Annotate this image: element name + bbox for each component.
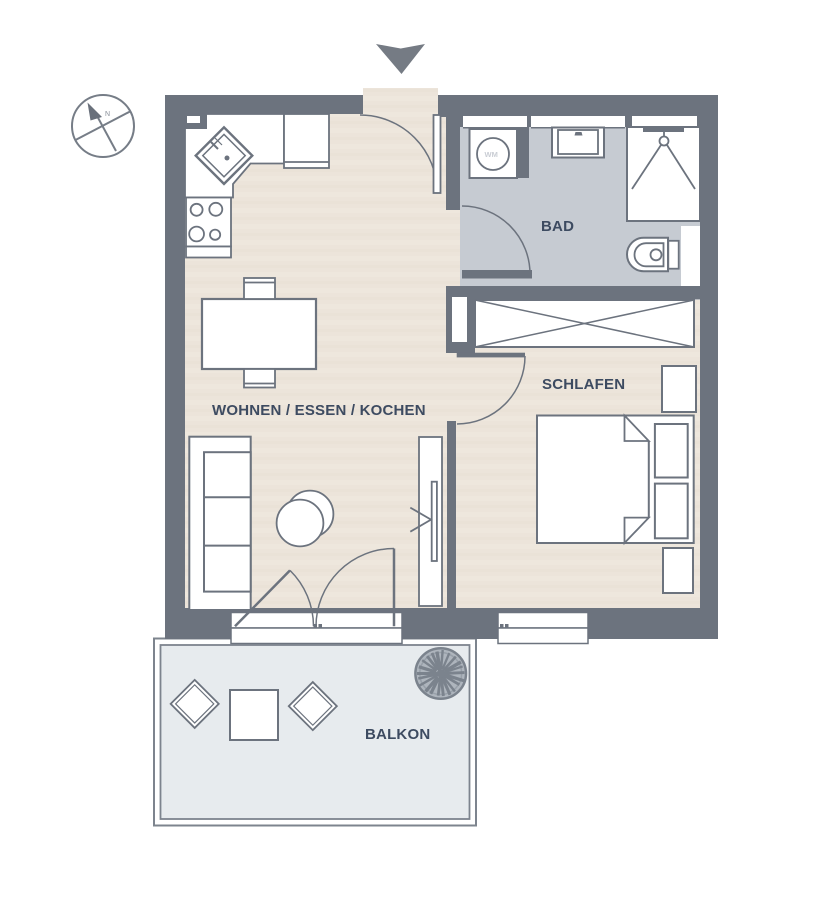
- svg-text:BALKON: BALKON: [365, 726, 430, 743]
- svg-text:N: N: [105, 111, 110, 118]
- svg-text:WOHNEN / ESSEN / KOCHEN: WOHNEN / ESSEN / KOCHEN: [212, 402, 426, 419]
- svg-text:WM: WM: [485, 150, 498, 159]
- svg-text:SCHLAFEN: SCHLAFEN: [542, 376, 625, 393]
- svg-text:BAD: BAD: [541, 218, 574, 235]
